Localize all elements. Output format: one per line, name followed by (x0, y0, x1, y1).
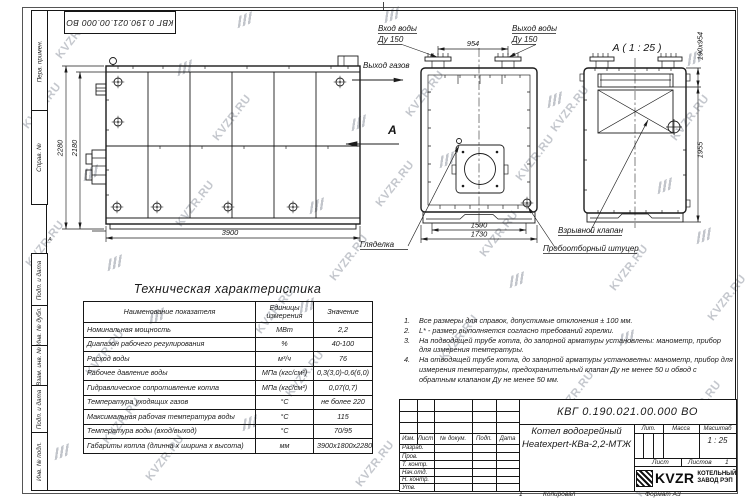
spec-cell: 2,2 (314, 323, 373, 338)
tb-product-name-line2: Heatexpert-КВа-2,2-МТЖ (519, 439, 634, 452)
tb-row-tkontr: Т. контр. (402, 462, 428, 468)
tb-row-nkontr: Н. контр. (402, 477, 429, 483)
tb-col-data: Дата (500, 436, 516, 442)
note-text: На отводящей трубе котла, до запорной ар… (419, 355, 734, 384)
tb-sheet-label: Лист (652, 459, 669, 466)
dim-top-nozzles: 954 (467, 39, 479, 48)
dim-width-inner: 1590 (471, 221, 488, 230)
note-item: 2.L* - размер выполняется согласно требо… (404, 326, 734, 336)
table-row: Гидравлическое сопротивление котлаМПа (к… (84, 381, 373, 396)
spec-cell: МВт (256, 323, 314, 338)
spec-cell: % (256, 337, 314, 352)
table-row: Диапазон рабочего регулирования%40-100 (84, 337, 373, 352)
tb-col-list: Лист (418, 436, 433, 442)
spec-col-header: Единицы измерения (256, 302, 314, 323)
note-number: 2. (404, 326, 419, 336)
spec-cell: Температура уходящих газов (84, 395, 256, 410)
side-view-dimensions: 2280 2180 3900 (56, 66, 361, 242)
dim-height-inner: 2180 (70, 139, 79, 157)
spec-cell: не более 220 (314, 395, 373, 410)
spec-cell: 0,3(3,0)-0,6(6,0) (314, 366, 373, 381)
note-text: Все размеры для справок, допустимые откл… (419, 316, 734, 326)
water-outlet-dn-label: Ду 150 (511, 35, 538, 44)
note-number: 3. (404, 336, 419, 356)
spec-cell: м³/ч (256, 352, 314, 367)
kvzr-brand-text: KVZR (655, 470, 694, 486)
kvzr-logo-icon (636, 470, 653, 487)
spec-cell: Номинальная мощность (84, 323, 256, 338)
tb-col-ndoc: № докум. (440, 436, 466, 442)
format-label: Формат А3 (645, 491, 681, 498)
spec-cell: Расход воды (84, 352, 256, 367)
water-inlet-label: Вход воды (378, 24, 417, 33)
copied-label: Копировал (543, 491, 575, 498)
tb-mass-label: Масса (672, 426, 690, 432)
spec-cell: 115 (314, 410, 373, 425)
note-item: 3.На подводящей трубе котла, до запорной… (404, 336, 734, 356)
spec-cell: 3900х1800х2280 (314, 439, 373, 454)
zone-number-1: 1 (519, 491, 523, 498)
spec-cell: МПа (кгс/см²) (256, 366, 314, 381)
tb-product-name: Котел водогрейный Heatexpert-КВа-2,2-МТЖ (519, 426, 634, 452)
side-view (86, 56, 360, 229)
tb-lit-label: Лит. (641, 426, 655, 432)
table-row: Температура воды (вход/выход)°С70/95 (84, 424, 373, 439)
tb-col-podp: Подп. (476, 436, 492, 442)
sampling-fitting-label: Пробоотборный штуцер (543, 244, 639, 253)
spec-cell: Диапазон рабочего регулирования (84, 337, 256, 352)
spec-cell: °С (256, 424, 314, 439)
water-inlet-dn-label: Ду 150 (377, 35, 404, 44)
spec-cell: Гидравлическое сопротивление котла (84, 381, 256, 396)
tb-scale-value: 1 : 25 (699, 436, 736, 445)
table-row: Габариты котла (длинна х ширина х высота… (84, 439, 373, 454)
water-outlet-label: Выход воды (512, 24, 557, 33)
title-block: Изм. Лист № докум. Подп. Дата Разраб. Пр… (399, 399, 737, 492)
front-view (421, 48, 537, 232)
spec-cell: 0,07(0,7) (314, 381, 373, 396)
sight-glass-label: Гляделка (360, 240, 395, 249)
spec-cell: мм (256, 439, 314, 454)
spec-cell: Температура воды (вход/выход) (84, 424, 256, 439)
spec-cell: 40-100 (314, 337, 373, 352)
spec-cell: 70/95 (314, 424, 373, 439)
table-row: Рабочее давление водыМПа (кгс/см²)0,3(3,… (84, 366, 373, 381)
dim-length: 3900 (222, 228, 239, 237)
view-direction-letter: А (387, 123, 397, 137)
dim-gas-opening: 190х954 (696, 32, 705, 60)
tb-row-nachotd: Нач.отд. (402, 470, 427, 476)
note-text: На подводящей трубе котла, до запорной а… (419, 336, 734, 356)
table-row: Максимальная рабочая температура воды°С1… (84, 410, 373, 425)
note-item: 4.На отводящей трубе котла, до запорной … (404, 355, 734, 384)
dim-height-outer: 2280 (56, 139, 65, 157)
tb-row-prov: Пров. (402, 454, 418, 460)
company-name-line1: КОТЕЛЬНЫЙ (697, 471, 736, 478)
tb-product-name-line1: Котел водогрейный (519, 426, 634, 439)
note-number: 1. (404, 316, 419, 326)
tb-doc-number: КВГ 0.190.021.00.000 ВО (519, 400, 736, 424)
technical-characteristics: Техническая характеристика Наименование … (83, 282, 372, 454)
company-name: КОТЕЛЬНЫЙ ЗАВОД РЭП (697, 471, 736, 485)
gas-outlet-label: Выход газов (363, 61, 410, 70)
note-text: L* - размер выполняется согласно требова… (419, 326, 734, 336)
spec-cell: Габариты котла (длинна х ширина х высота… (84, 439, 256, 454)
spec-col-header: Значение (314, 302, 373, 323)
spec-cell: 76 (314, 352, 373, 367)
dim-side-height: 1955 (696, 141, 705, 158)
spec-col-header: Наименование показателя (84, 302, 256, 323)
tb-row-razrab: Разраб. (402, 445, 424, 451)
table-row: Расход водым³/ч76 (84, 352, 373, 367)
note-item: 1.Все размеры для справок, допустимые от… (404, 316, 734, 326)
spec-cell: °С (256, 410, 314, 425)
tb-scale-label: Масштаб (703, 426, 731, 432)
note-number: 4. (404, 355, 419, 384)
table-row: Температура уходящих газов°Сне более 220 (84, 395, 373, 410)
spec-cell: °С (256, 395, 314, 410)
spec-cell: МПа (кгс/см²) (256, 381, 314, 396)
callout-labels: Вход воды Ду 150 Выход воды Ду 150 Выход… (346, 24, 648, 254)
view-a-title: А ( 1 : 25 ) (611, 42, 661, 54)
spec-table-title: Техническая характеристика (83, 282, 372, 296)
table-row: Номинальная мощностьМВт2,2 (84, 323, 373, 338)
drawing-sheet: KVZR.RUKVZR.RUKVZR.RUKVZR.RUKVZR.RUKVZR.… (0, 0, 750, 500)
spec-cell: Рабочее давление воды (84, 366, 256, 381)
company-name-line2: ЗАВОД РЭП (697, 478, 736, 485)
tb-sheets-value: 1 (725, 459, 729, 466)
notes-list: 1.Все размеры для справок, допустимые от… (404, 316, 734, 384)
dim-width-outer: 1730 (471, 230, 488, 239)
tb-row-utv: Утв. (402, 485, 416, 491)
spec-table: Наименование показателя Единицы измерени… (83, 301, 373, 454)
section-view-a: А ( 1 : 25 ) (580, 42, 690, 228)
company-logo: KVZR КОТЕЛЬНЫЙ ЗАВОД РЭП (636, 467, 736, 489)
tb-sheets-label: Листов (688, 459, 712, 466)
tb-col-izm: Изм. (402, 436, 415, 442)
spec-cell: Максимальная рабочая температура воды (84, 410, 256, 425)
